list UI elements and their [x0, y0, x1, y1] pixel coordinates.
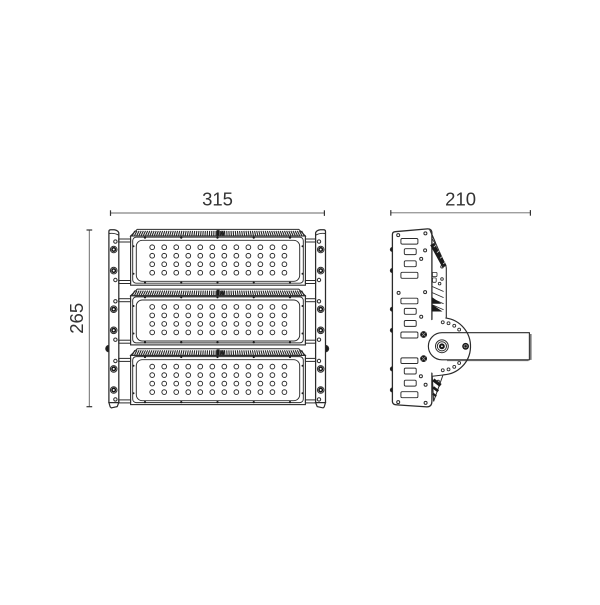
svg-text:315: 315 — [202, 189, 233, 210]
svg-text:265: 265 — [66, 303, 87, 334]
svg-text:210: 210 — [445, 189, 476, 210]
